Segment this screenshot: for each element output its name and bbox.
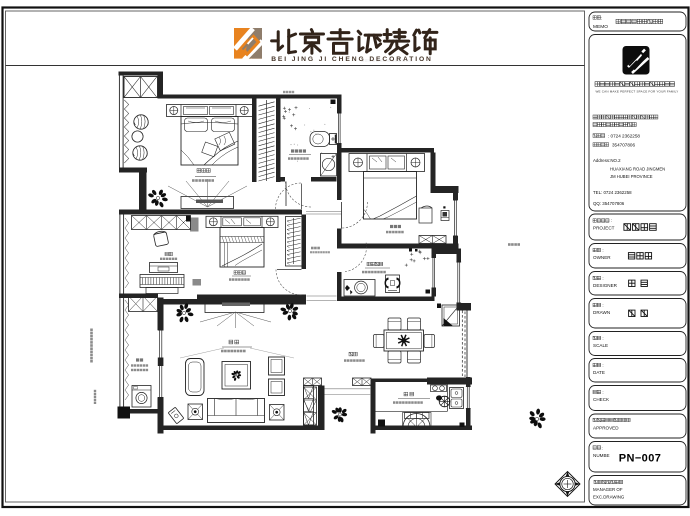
- svg-text:JM HUBEI PROVINCE: JM HUBEI PROVINCE: [610, 174, 653, 179]
- svg-text:DESIGNER: DESIGNER: [593, 283, 618, 288]
- svg-text::: :: [611, 218, 612, 223]
- svg-text:EXC.DRAWING: EXC.DRAWING: [593, 495, 625, 500]
- svg-text::: :: [602, 363, 603, 368]
- svg-text:PROJECT: PROJECT: [593, 226, 615, 231]
- svg-text:QQ: 354707806: QQ: 354707806: [593, 201, 625, 206]
- svg-text::: :: [601, 16, 602, 21]
- svg-text::: :: [602, 248, 603, 253]
- svg-text:MANAGER OF: MANAGER OF: [593, 487, 623, 492]
- svg-text:354707806: 354707806: [612, 143, 635, 148]
- svg-text:TEL: 0724 2362258: TEL: 0724 2362258: [593, 190, 632, 195]
- svg-text:MEMO: MEMO: [593, 24, 608, 30]
- svg-text:OWNER: OWNER: [593, 255, 611, 260]
- svg-text:NUMBE: NUMBE: [593, 453, 610, 458]
- svg-text:SCALE: SCALE: [593, 343, 608, 348]
- svg-text::: :: [602, 390, 603, 395]
- svg-text:HUAXIANG ROAD JINGMEN: HUAXIANG ROAD JINGMEN: [610, 167, 665, 172]
- svg-text::: :: [602, 276, 603, 281]
- svg-text:Address:NO.2: Address:NO.2: [593, 158, 621, 163]
- svg-text:DRAWN: DRAWN: [593, 310, 610, 315]
- svg-text:CHECK: CHECK: [593, 397, 610, 402]
- svg-text::: :: [602, 303, 603, 308]
- svg-text:APPROVED: APPROVED: [593, 426, 619, 431]
- svg-text::: :: [602, 446, 603, 451]
- svg-text::: :: [602, 336, 603, 341]
- svg-text:PN−007: PN−007: [619, 453, 661, 465]
- svg-text:: 0724 2362258: : 0724 2362258: [608, 134, 640, 139]
- svg-text:DATE: DATE: [593, 370, 605, 375]
- svg-text:WE CAN MAKE PERFECT SPACE FOR: WE CAN MAKE PERFECT SPACE FOR YOUR FAMIL…: [596, 90, 679, 94]
